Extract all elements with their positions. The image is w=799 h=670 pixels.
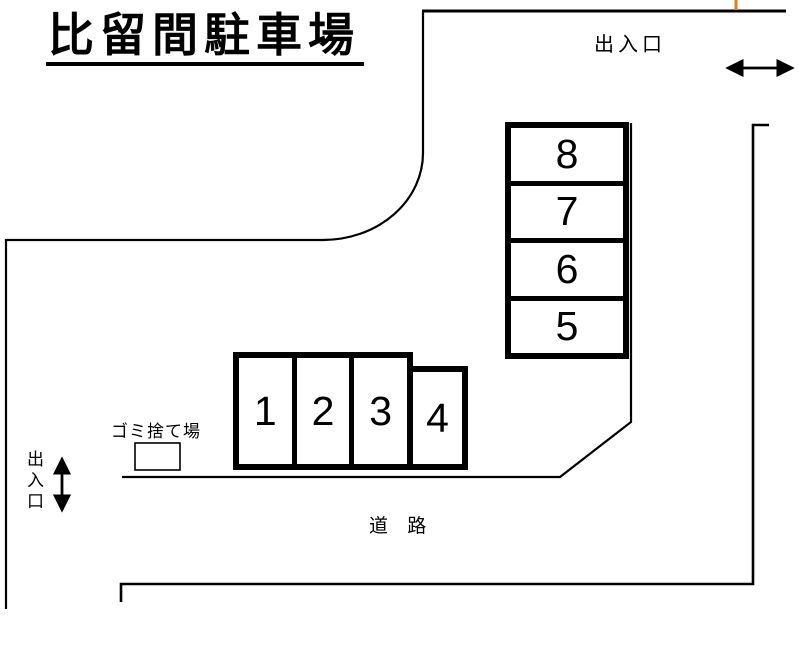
garbage-area-label: ゴミ捨て場 [111,417,201,442]
parking-space-3: 3 [354,358,407,464]
lot-linework [0,0,799,670]
parking-space-2: 2 [297,358,350,464]
parking-space-7: 7 [511,186,623,239]
lot-boundary-left [6,11,423,609]
parking-row-1-3: 1 2 3 [233,352,413,470]
parking-space-5: 5 [511,301,623,354]
parking-space-4-number: 4 [413,395,462,442]
parking-column-5-8: 8 7 6 5 [505,122,629,359]
right-and-bottom-road-border [121,125,769,602]
parking-space-6: 6 [511,243,623,296]
side-entrance-label: 出入口 [21,450,46,520]
parking-space-8: 8 [511,128,623,181]
parking-space-1: 1 [239,358,292,464]
garbage-area-box [135,443,180,470]
parking-space-4: 4 [407,366,468,470]
road-label: 道 路 [369,511,433,538]
top-entrance-label: 出入口 [594,28,666,57]
page-title: 比留間駐車場 [46,10,364,66]
